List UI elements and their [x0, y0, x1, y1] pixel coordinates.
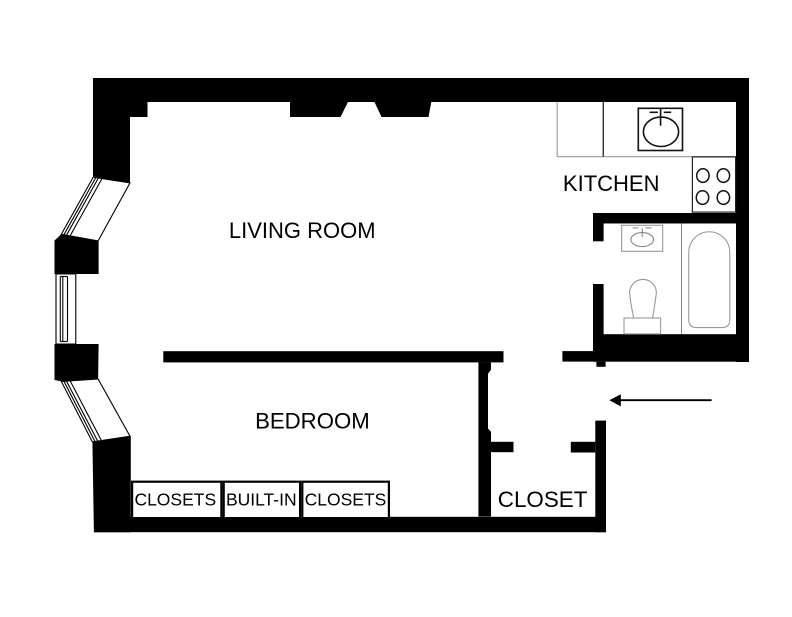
svg-text:KITCHEN: KITCHEN: [563, 171, 660, 196]
svg-text:CLOSETS: CLOSETS: [134, 490, 216, 510]
svg-text:LIVING ROOM: LIVING ROOM: [229, 218, 376, 243]
svg-text:CLOSETS: CLOSETS: [305, 490, 387, 510]
svg-text:BUILT-IN: BUILT-IN: [226, 490, 297, 510]
svg-text:CLOSET: CLOSET: [498, 487, 588, 512]
svg-text:BEDROOM: BEDROOM: [255, 409, 370, 434]
